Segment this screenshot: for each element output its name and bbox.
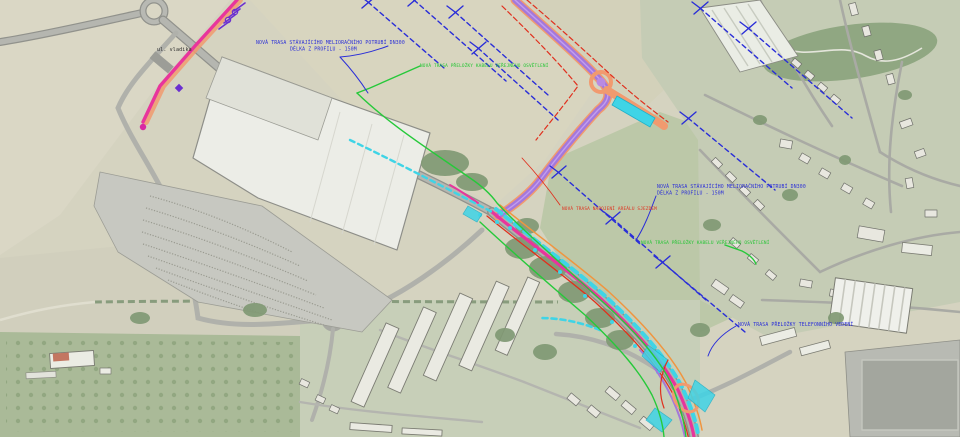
water-main-endpoint <box>140 124 146 130</box>
street-name-label: ul. vladika <box>157 47 192 53</box>
site-plan-map: NOVÁ TRASA STÁVAJÍCÍHO MELIORAČNÍHO POTR… <box>0 0 960 437</box>
